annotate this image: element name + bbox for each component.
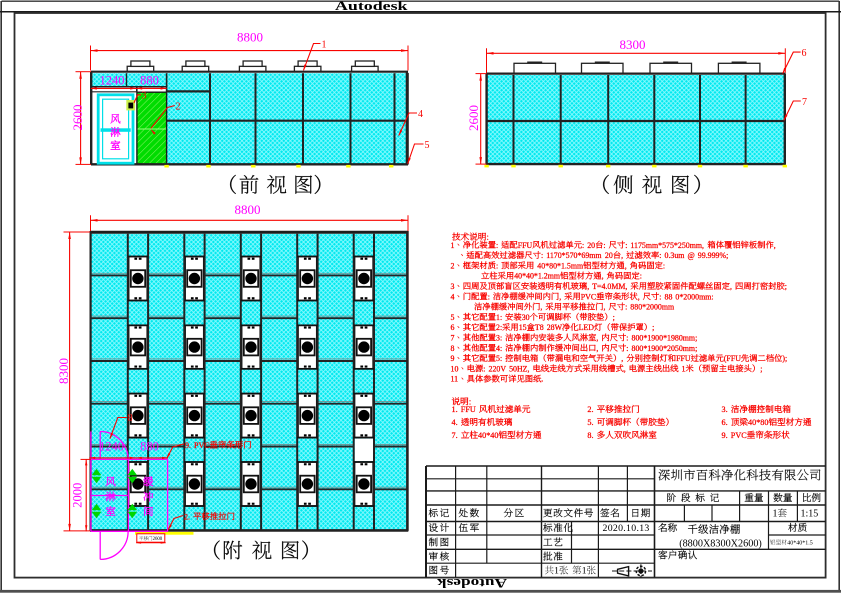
svg-text:800*1900*1980mm;: 800*1900*1980mm; [632,334,698,343]
svg-text:40*80: 40*80 [748,418,768,427]
svg-text:5: 5 [425,140,430,151]
svg-text:PVC: PVC [581,292,596,301]
svg-text:9.: 9. [722,431,728,440]
svg-text:880: 880 [140,74,159,88]
svg-text:(FFU: (FFU [724,354,741,363]
svg-text:3.: 3. [722,405,728,414]
svg-text:5:: 5: [496,354,502,363]
svg-text:LED: LED [579,323,595,332]
svg-text:28W: 28W [547,323,563,332]
svg-text:2600: 2600 [70,105,85,131]
svg-text:6: 6 [451,323,455,332]
svg-text:2:: 2: [496,323,502,332]
svg-text:4:: 4: [496,344,502,353]
svg-text:T8: T8 [535,323,544,332]
svg-text:6: 6 [802,48,807,59]
svg-text:1: 1 [773,508,778,519]
svg-text:30: 30 [522,313,530,322]
svg-text:,: , [638,292,640,301]
svg-text:8300: 8300 [56,358,71,384]
svg-text:1: 1 [322,39,327,50]
svg-text:6.: 6. [722,418,728,427]
svg-text:40*40*1.2mm: 40*40*1.2mm [514,272,561,281]
svg-text:1:: 1: [496,313,502,322]
svg-text:7: 7 [451,334,455,343]
svg-text:T=4.0MM,: T=4.0MM, [592,282,627,291]
svg-text:5.: 5. [587,418,593,427]
svg-text:3: 3 [451,282,455,291]
svg-text:1240: 1240 [100,74,125,88]
svg-text:8: 8 [451,344,455,353]
svg-text:FFU: FFU [518,241,533,250]
svg-text:2.: 2. [184,512,190,521]
svg-text:,: , [596,334,598,343]
svg-text:2000: 2000 [71,483,85,508]
svg-text:@: @ [688,251,695,260]
svg-text:,: , [602,272,604,281]
svg-text:20: 20 [605,251,613,260]
svg-text:3:: 3: [496,334,502,343]
svg-text:,: , [604,303,606,312]
svg-text:PVC: PVC [194,441,210,450]
svg-text:0*2000mm:: 0*2000mm: [675,292,713,301]
svg-text:4: 4 [418,109,423,120]
svg-text::: : [625,303,627,312]
svg-text::: : [582,241,584,250]
svg-text::: : [659,292,661,301]
svg-text:;: ; [613,313,615,322]
svg-text:4: 4 [451,292,455,301]
svg-text:,: , [730,282,732,291]
svg-text:8.: 8. [587,431,593,440]
svg-text:5: 5 [451,313,455,322]
svg-text:40*40: 40*40 [478,431,498,440]
svg-text:880*2000mm: 880*2000mm [630,303,675,312]
svg-text:8800: 8800 [237,30,263,45]
svg-text:4.: 4. [452,418,458,427]
svg-text:2020.10.13: 2020.10.13 [603,523,650,534]
svg-text:FFU: FFU [461,405,476,414]
svg-text:8: 8 [128,413,133,424]
svg-text:88: 88 [665,292,673,301]
svg-text:,: , [625,261,627,270]
svg-text::: : [483,364,485,373]
svg-text:1240: 1240 [99,440,124,454]
svg-text:(8800X8300X2600): (8800X8300X2600) [679,539,762,550]
svg-text:9.: 9. [185,441,191,450]
svg-text::: : [488,292,490,301]
svg-text:8300: 8300 [620,37,646,52]
svg-text::: : [640,272,642,281]
svg-text:0.3um: 0.3um [665,251,686,260]
svg-text::: : [541,251,543,260]
svg-text::: : [626,334,628,343]
svg-text:2: 2 [451,261,455,270]
svg-text:99.999%;: 99.999%; [698,251,728,260]
svg-text:880: 880 [140,440,159,454]
svg-text::: : [626,344,628,353]
svg-text:,: , [774,241,776,250]
svg-text:20: 20 [587,241,595,250]
svg-text:220V: 220V [489,364,507,373]
svg-text:40*80*1.5mm: 40*80*1.5mm [537,261,584,270]
svg-text:,: , [540,303,542,312]
svg-text:,: , [587,282,589,291]
svg-text:8800: 8800 [235,202,261,217]
svg-text:PVC: PVC [731,431,747,440]
svg-text:;: ; [760,364,762,373]
svg-text:;: ; [785,282,787,291]
svg-text:,: , [621,354,623,363]
svg-text:,: , [559,292,561,301]
svg-text:1: 1 [582,566,587,577]
svg-text:7.: 7. [452,431,458,440]
svg-text:11: 11 [451,375,459,384]
svg-text:,: , [621,251,623,260]
svg-text:40*40*1.5: 40*40*1.5 [787,540,813,546]
svg-text:1.: 1. [452,405,458,414]
svg-text::: : [496,241,498,250]
svg-text:,: , [624,364,626,373]
svg-text:1175mm*575*250mm,: 1175mm*575*250mm, [630,241,704,250]
svg-text::: : [625,241,627,250]
svg-text::: : [603,241,605,250]
svg-text:;: ; [652,323,654,332]
svg-text:2: 2 [176,101,181,112]
svg-text::: : [663,261,665,270]
svg-text:);: ); [782,354,787,363]
svg-text:,: , [596,344,598,353]
svg-text:9: 9 [451,354,455,363]
svg-text:2.: 2. [587,405,593,414]
svg-text:2600: 2600 [466,105,481,131]
svg-text:1: 1 [682,364,686,373]
svg-text:1: 1 [554,566,559,577]
svg-text:2600: 2600 [153,537,163,542]
svg-text:Autodesk: Autodesk [335,0,408,13]
svg-text:.: . [541,375,543,384]
svg-text:10: 10 [451,364,459,373]
svg-text:15: 15 [519,323,527,332]
svg-text:3: 3 [142,90,147,101]
svg-text:800*1900*2050mm;: 800*1900*2050mm; [632,344,698,353]
svg-text:1170*570*69mm: 1170*570*69mm [546,251,602,260]
svg-text:1:15: 1:15 [801,508,819,519]
svg-text::: : [496,261,498,270]
svg-text:1: 1 [451,241,455,250]
svg-text:FFU: FFU [676,354,691,363]
svg-text::: : [659,251,661,260]
svg-text:7: 7 [802,97,807,108]
svg-text:50HZ,: 50HZ, [509,364,529,373]
